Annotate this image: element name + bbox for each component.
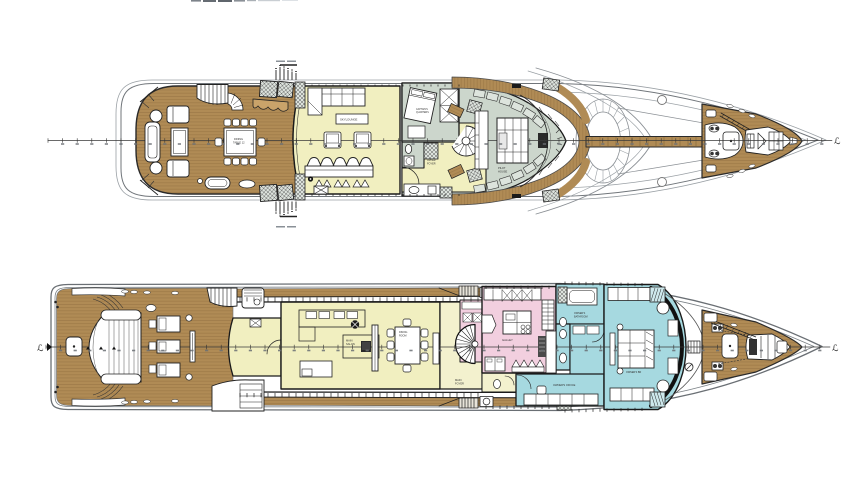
svg-text:PILOT: PILOT — [498, 166, 506, 170]
svg-text:OWNER'S OFFICE: OWNER'S OFFICE — [553, 383, 576, 387]
svg-text:SKYLOUNGE: SKYLOUNGE — [340, 118, 358, 122]
svg-text:OWNER'S BR: OWNER'S BR — [626, 371, 641, 374]
svg-text:FOYER: FOYER — [455, 382, 464, 386]
svg-text:CAPTAIN'S: CAPTAIN'S — [416, 108, 428, 111]
svg-text:MAIN: MAIN — [455, 378, 462, 382]
svg-text:SALON: SALON — [346, 342, 355, 346]
svg-text:ℒ: ℒ — [37, 343, 44, 353]
svg-text:MAIN: MAIN — [346, 339, 353, 343]
svg-text:DINING: DINING — [234, 137, 243, 141]
svg-text:QUARTERS: QUARTERS — [416, 111, 429, 114]
svg-text:FOYER: FOYER — [427, 163, 436, 166]
svg-text:ROOM: ROOM — [399, 335, 406, 338]
svg-text:HOUSE: HOUSE — [498, 170, 507, 174]
svg-text:BATHROOM: BATHROOM — [574, 316, 588, 319]
svg-text:GALLEY: GALLEY — [502, 338, 513, 342]
svg-text:ℒ: ℒ — [832, 343, 839, 353]
svg-text:ℒ: ℒ — [834, 136, 841, 146]
